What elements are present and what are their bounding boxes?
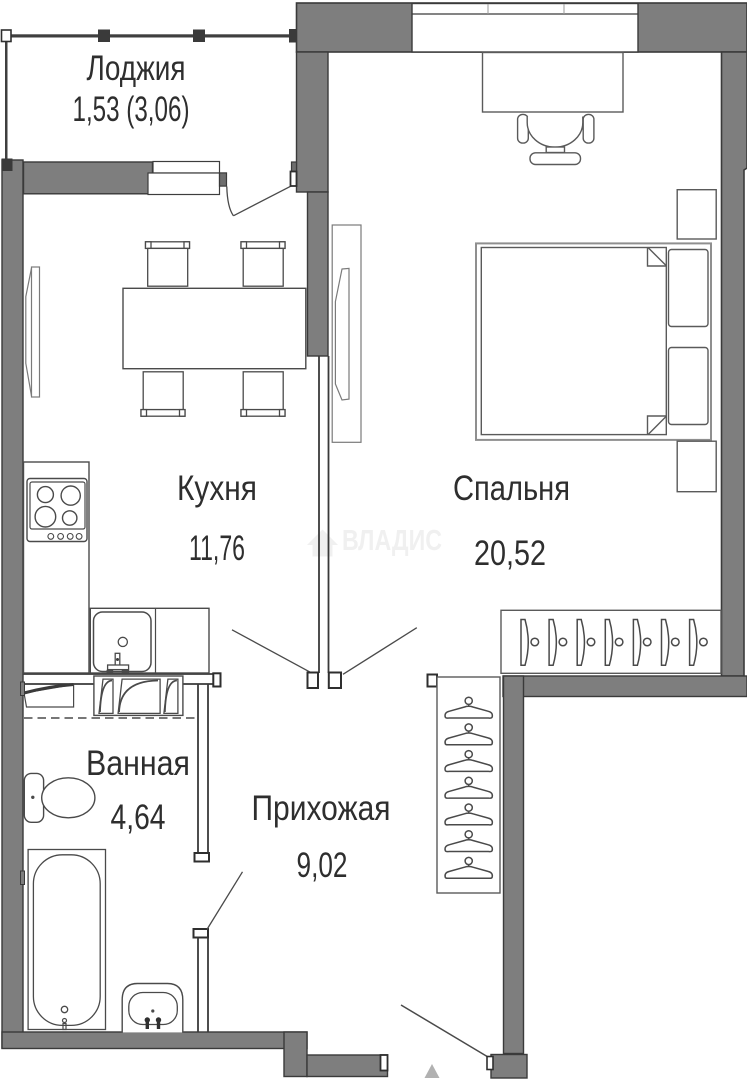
svg-text:ВЛАДИС: ВЛАДИС	[342, 525, 442, 557]
svg-text:Лоджия: Лоджия	[87, 49, 186, 88]
svg-text:9,02: 9,02	[297, 846, 348, 885]
svg-text:11,76: 11,76	[189, 529, 245, 568]
svg-text:4,64: 4,64	[111, 798, 166, 837]
svg-text:Спальня: Спальня	[453, 469, 570, 508]
svg-text:Ванная: Ванная	[86, 744, 190, 783]
svg-text:Прихожая: Прихожая	[252, 789, 391, 828]
svg-text:1,53 (3,06): 1,53 (3,06)	[73, 90, 190, 129]
svg-text:20,52: 20,52	[474, 534, 546, 573]
svg-text:Кухня: Кухня	[177, 469, 257, 508]
